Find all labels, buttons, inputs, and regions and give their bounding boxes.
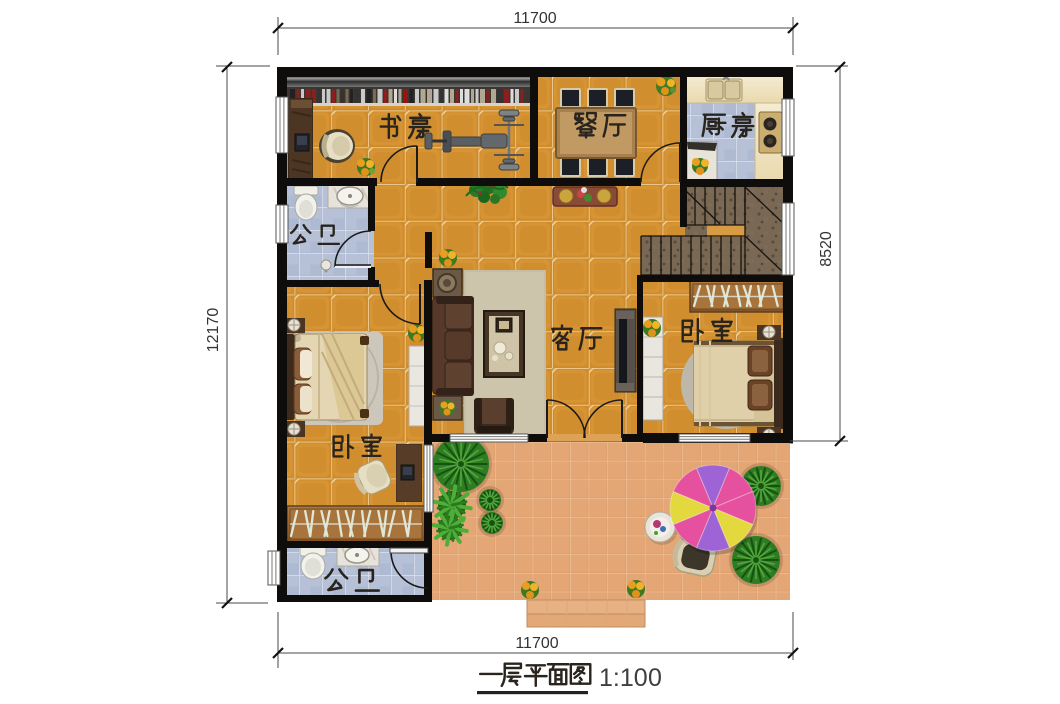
svg-text:12170: 12170 bbox=[205, 308, 222, 353]
svg-text:8520: 8520 bbox=[818, 231, 835, 267]
svg-text:11700: 11700 bbox=[515, 635, 558, 652]
svg-text:11700: 11700 bbox=[513, 10, 556, 27]
svg-text:1:10: 1:10 bbox=[599, 664, 648, 692]
svg-text:0: 0 bbox=[648, 664, 662, 692]
